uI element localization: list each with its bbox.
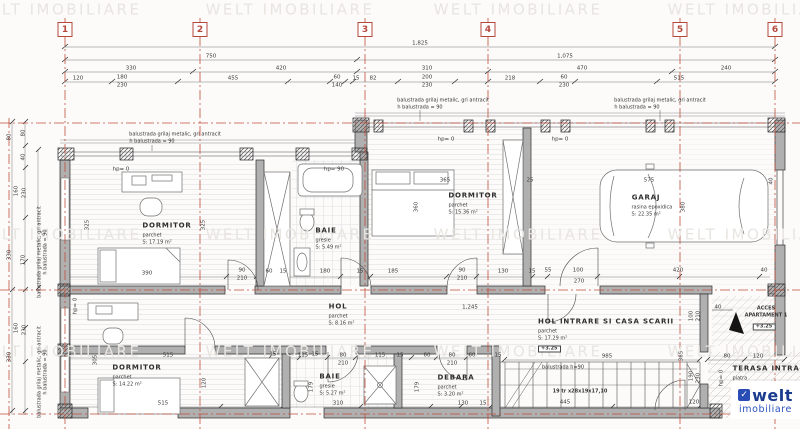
floor-plan-drawing (0, 0, 800, 429)
grid-axis-bubble-2: 2 (193, 22, 208, 37)
wardrobe (245, 358, 279, 406)
shower (364, 366, 396, 404)
chair (140, 198, 162, 216)
bed (98, 378, 180, 414)
wardrobe (264, 172, 290, 286)
sink (294, 248, 310, 276)
stairs (500, 362, 700, 408)
grid-axis-bubble-1: 1 (58, 22, 73, 37)
desk (88, 303, 138, 320)
wardrobe (503, 140, 523, 254)
toilet (300, 209, 314, 231)
welt-imobiliare-logo: ✓ welt imobiliare (731, 381, 800, 419)
bed (372, 170, 454, 236)
grid-axis-bubble-5: 5 (673, 22, 688, 37)
desk (122, 172, 182, 192)
grid-axis-bubble-4: 4 (481, 22, 496, 37)
welt-logo-icon: ✓ (738, 389, 750, 401)
logo-brand-name: welt (752, 386, 793, 405)
logo-brand-sub: imobiliare (739, 404, 792, 415)
car (600, 164, 768, 248)
bathtub (298, 164, 362, 196)
floor-plan-canvas: WELT IMOBILIAREWELT IMOBILIAREWELT IMOBI… (0, 0, 800, 429)
bed (98, 248, 180, 284)
grid-axis-bubble-3: 3 (358, 22, 373, 37)
toilet (294, 381, 308, 402)
grid-axis-bubble-6: 6 (768, 22, 783, 37)
chair (103, 328, 123, 344)
